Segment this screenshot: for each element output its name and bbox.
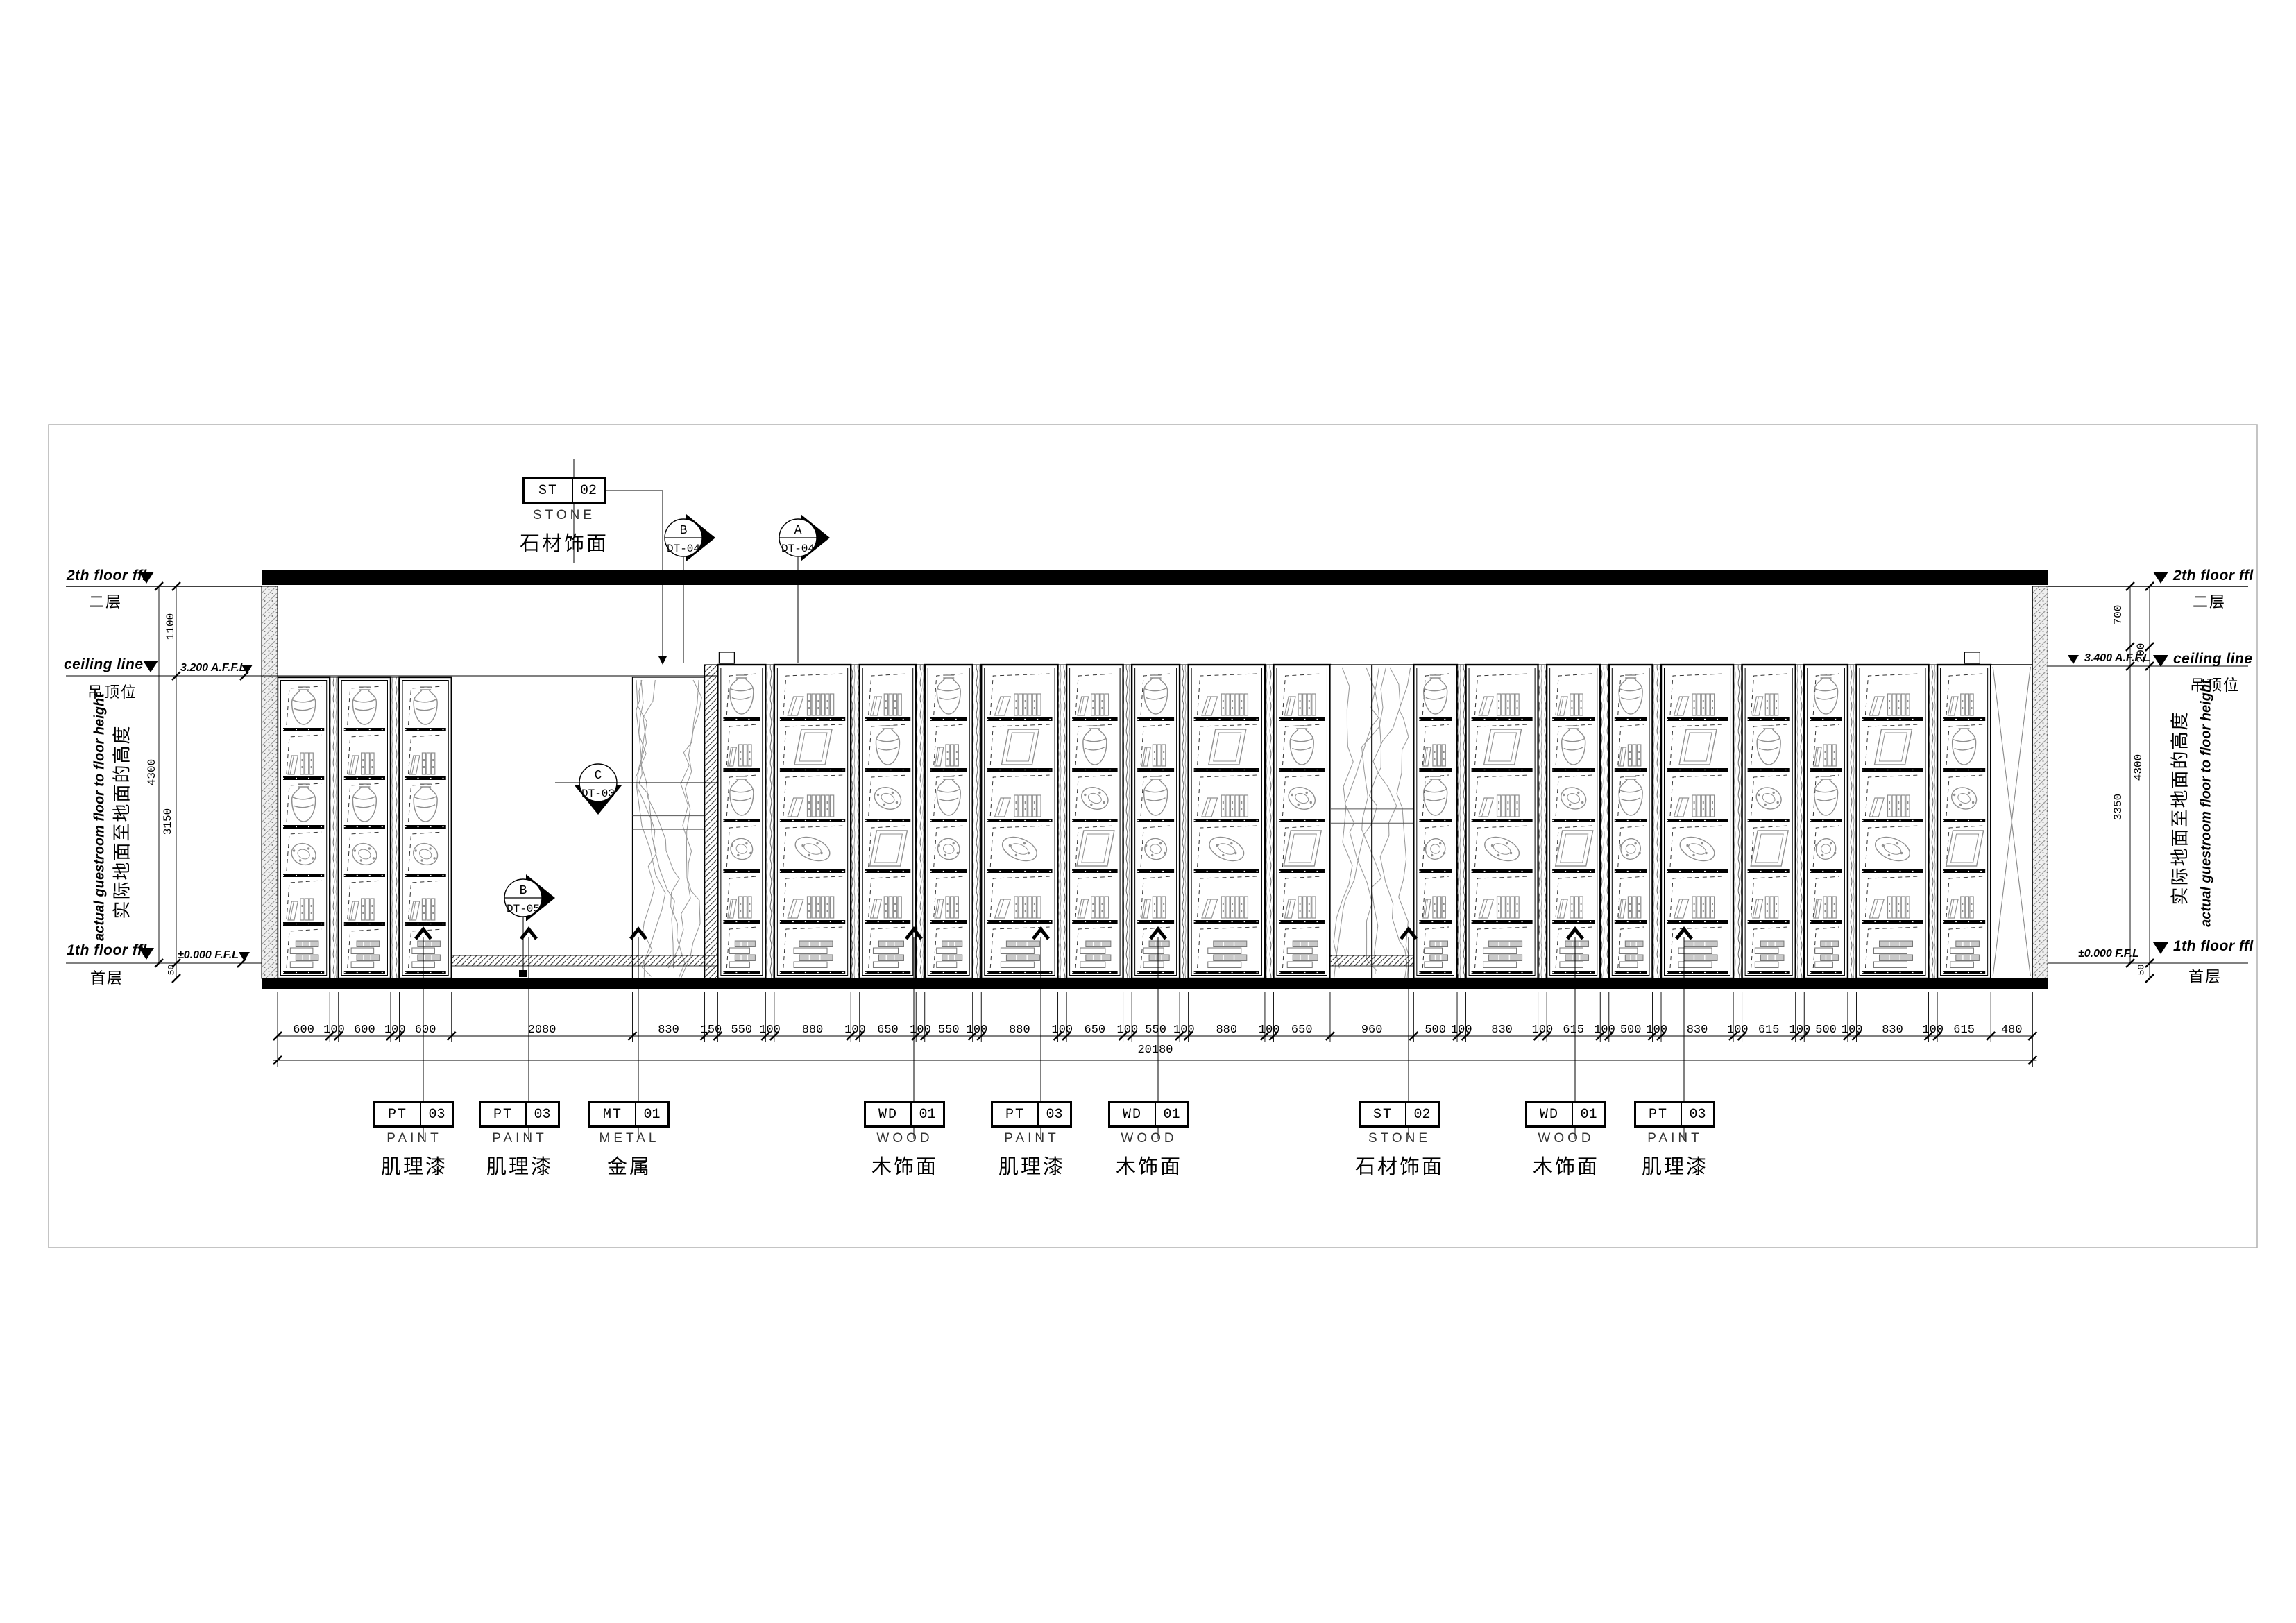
svg-text:550: 550 (938, 1023, 960, 1037)
svg-text:100: 100 (1052, 1023, 1073, 1037)
finish-tag-code: PT (375, 1103, 421, 1125)
svg-text:2080: 2080 (528, 1023, 556, 1037)
svg-text:DT-03: DT-03 (581, 788, 615, 800)
svg-text:100: 100 (323, 1023, 345, 1037)
svg-text:830: 830 (1882, 1023, 1903, 1037)
svg-text:A: A (794, 524, 802, 538)
finish-tag-label-en: METAL (560, 1131, 699, 1146)
svg-text:650: 650 (1085, 1023, 1106, 1037)
dim-right-700: 700 (2112, 580, 2125, 649)
finish-tag-label-en: STONE (1330, 1131, 1469, 1146)
finish-tag-code: PT (1636, 1103, 1682, 1125)
svg-text:500: 500 (1620, 1023, 1642, 1037)
svg-text:DT-04: DT-04 (781, 543, 815, 555)
svg-text:100: 100 (759, 1023, 781, 1037)
svg-text:550: 550 (731, 1023, 753, 1037)
dim-left-50: 50 (167, 949, 177, 991)
svg-text:960: 960 (1361, 1023, 1383, 1037)
note-right-cn: 实际地面至地面的高度 (2166, 656, 2192, 961)
finish-tag-number: 03 (1039, 1103, 1070, 1125)
finish-tag-code: PT (993, 1103, 1039, 1125)
finish-tag-box: WD01 (1525, 1101, 1606, 1128)
svg-text:615: 615 (1758, 1023, 1780, 1037)
svg-text:100: 100 (1259, 1023, 1280, 1037)
overall-dimension: 20180 (1086, 1044, 1225, 1057)
dim-left-1100: 1100 (164, 592, 177, 661)
finish-tag-label-en: WOOD (1080, 1131, 1218, 1146)
svg-text:100: 100 (910, 1023, 931, 1037)
level-marker-triangle (139, 572, 154, 584)
finish-tag-label-cn: 木饰面 (835, 1150, 974, 1180)
svg-text:100: 100 (1789, 1023, 1811, 1037)
svg-text:500: 500 (1425, 1023, 1446, 1037)
svg-text:150: 150 (701, 1023, 722, 1037)
svg-text:100: 100 (1451, 1023, 1472, 1037)
svg-text:880: 880 (802, 1023, 824, 1037)
dim-left-3150: 3150 (162, 787, 174, 856)
svg-text:DT-05: DT-05 (507, 903, 540, 915)
svg-text:100: 100 (1646, 1023, 1667, 1037)
svg-text:880: 880 (1216, 1023, 1237, 1037)
note-right-en: actual guestroom floor to floor height (2199, 595, 2215, 1012)
svg-text:100: 100 (1532, 1023, 1554, 1037)
dim-right-4300: 4300 (2132, 733, 2145, 802)
finish-tag-label-en: PAINT (1606, 1131, 1744, 1146)
finish-tag-number: 03 (421, 1103, 452, 1125)
finish-tag-box: PT03 (1634, 1101, 1715, 1128)
finish-tag-label-cn: 肌理漆 (1606, 1150, 1744, 1180)
elevation-drawing: 6001006001006002080830150550100880100650… (0, 0, 2296, 1623)
svg-text:100: 100 (1173, 1023, 1195, 1037)
finish-tag-code: MT (590, 1103, 636, 1125)
level-marker-triangle (2153, 572, 2168, 584)
level-marker-triangle (2068, 655, 2079, 664)
svg-text:830: 830 (1491, 1023, 1513, 1037)
finish-tag-box: PT03 (373, 1101, 454, 1128)
level-marker-triangle (143, 661, 158, 672)
svg-text:B: B (680, 524, 688, 538)
svg-text:600: 600 (354, 1023, 375, 1037)
finish-tag-label-cn: 金属 (560, 1150, 699, 1180)
finish-tag-number: 01 (1156, 1103, 1187, 1125)
finish-tag-number: 02 (1406, 1103, 1438, 1125)
finish-tag-code: WD (1110, 1103, 1156, 1125)
finish-tag-code: WD (866, 1103, 912, 1125)
finish-tag-number: 01 (1573, 1103, 1604, 1125)
dim-right-200: 200 (2135, 618, 2148, 688)
finish-tag-number: 03 (527, 1103, 558, 1125)
finish-tag-number: 02 (573, 479, 604, 502)
finish-tag-box: PT03 (479, 1101, 560, 1128)
level-ffl-left: ±0.000 F.F.L (178, 949, 239, 962)
svg-text:DT-04: DT-04 (667, 543, 700, 555)
finish-tag-label-cn: 石材饰面 (495, 527, 633, 556)
finish-tag-box: WD01 (864, 1101, 945, 1128)
dim-right-3350: 3350 (2112, 772, 2125, 842)
finish-tag-box: MT01 (588, 1101, 670, 1128)
svg-text:600: 600 (293, 1023, 314, 1037)
svg-text:C: C (595, 769, 602, 783)
svg-text:830: 830 (658, 1023, 679, 1037)
svg-text:550: 550 (1145, 1023, 1166, 1037)
svg-text:650: 650 (1291, 1023, 1313, 1037)
svg-text:830: 830 (1687, 1023, 1708, 1037)
svg-text:100: 100 (384, 1023, 406, 1037)
note-left-cn: 实际地面至地面的高度 (108, 670, 134, 975)
note-left-en: actual guestroom floor to floor height (92, 609, 108, 1026)
svg-text:615: 615 (1563, 1023, 1584, 1037)
level-marker-triangle (241, 665, 253, 674)
level-marker-triangle (239, 952, 250, 961)
finish-tag-label-en: WOOD (835, 1131, 974, 1146)
finish-tag-box: WD01 (1108, 1101, 1189, 1128)
finish-tag-stone-top: ST 02 (522, 477, 606, 504)
svg-text:100: 100 (1922, 1023, 1944, 1037)
finish-tag-box: PT03 (991, 1101, 1072, 1128)
finish-tag-label-en: STONE (495, 508, 633, 523)
dim-right-50: 50 (2136, 949, 2147, 991)
dim-left-4300: 4300 (146, 738, 158, 807)
svg-text:600: 600 (415, 1023, 436, 1037)
finish-tag-code: ST (1361, 1103, 1406, 1125)
finish-tag-code: WD (1527, 1103, 1573, 1125)
finish-tag-label-cn: 木饰面 (1080, 1150, 1218, 1180)
finish-tag-number: 01 (912, 1103, 943, 1125)
level-marker-triangle (139, 948, 154, 960)
finish-tag-code: ST (525, 479, 573, 502)
finish-tag-number: 01 (636, 1103, 667, 1125)
finish-tag-box: ST02 (1359, 1101, 1440, 1128)
drawing-sheet: 6001006001006002080830150550100880100650… (0, 0, 2296, 1623)
svg-text:650: 650 (877, 1023, 899, 1037)
svg-text:615: 615 (1953, 1023, 1975, 1037)
svg-text:500: 500 (1815, 1023, 1837, 1037)
level-affl-left: 3.200 A.F.F.L (180, 662, 246, 674)
level-label-2f-left-en: 2th floor ffl (67, 568, 147, 584)
finish-tag-code: PT (481, 1103, 527, 1125)
svg-text:100: 100 (967, 1023, 988, 1037)
svg-text:100: 100 (844, 1023, 866, 1037)
finish-tag-label-cn: 石材饰面 (1330, 1150, 1469, 1180)
svg-text:B: B (520, 884, 527, 898)
svg-text:100: 100 (1842, 1023, 1863, 1037)
svg-text:100: 100 (1117, 1023, 1139, 1037)
svg-text:100: 100 (1727, 1023, 1749, 1037)
level-ffl-right: ±0.000 F.F.L (2078, 948, 2139, 960)
level-label-2f-right-en: 2th floor ffl (2173, 568, 2254, 584)
level-label-ceiling-right-cn: 吊顶位 (2190, 673, 2240, 695)
finish-tag-number: 03 (1682, 1103, 1713, 1125)
svg-text:880: 880 (1009, 1023, 1030, 1037)
svg-text:480: 480 (2001, 1023, 2023, 1037)
svg-text:100: 100 (1594, 1023, 1615, 1037)
